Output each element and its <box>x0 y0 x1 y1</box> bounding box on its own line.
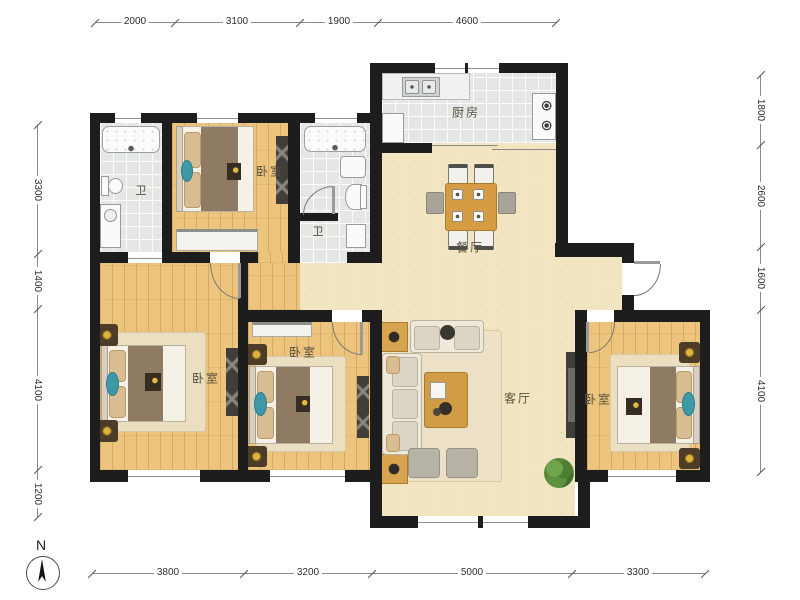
dim-label: 2000 <box>121 16 149 28</box>
bathtub <box>304 126 366 152</box>
dining-chair <box>448 164 468 184</box>
compass-north-label: N <box>36 537 46 553</box>
floor-corridor-wood <box>248 263 300 310</box>
window-mullion <box>465 63 468 73</box>
door-leaf-bedroom-middle <box>360 322 363 354</box>
wall-segment <box>370 310 382 528</box>
wall-segment <box>370 63 382 263</box>
floor-entry-hall <box>575 257 622 310</box>
sliding-door-bath-main <box>128 252 162 263</box>
window <box>608 470 676 482</box>
dim-label: 3800 <box>154 567 182 579</box>
window <box>115 113 141 123</box>
window <box>483 516 528 528</box>
bed-quilt-tray <box>626 398 642 415</box>
wardrobe <box>226 348 238 416</box>
sofa-cushion <box>392 389 418 419</box>
room-label-bedroom-left: 卧室 <box>192 370 220 387</box>
window <box>270 470 345 482</box>
dim-label: 1400 <box>31 267 43 295</box>
place-setting <box>452 189 463 200</box>
window <box>315 113 357 123</box>
dining-chair <box>474 164 494 184</box>
kitchen-sink-basin <box>422 80 436 94</box>
nightstand-lamp <box>679 448 700 469</box>
dimension-line-bottom <box>92 573 705 574</box>
toilet-bowl <box>108 178 123 194</box>
place-setting <box>473 211 484 222</box>
door-opening-bedroom-left <box>210 252 240 263</box>
toilet-tank <box>360 185 367 209</box>
wardrobe <box>357 376 369 438</box>
coffee-table <box>424 372 468 428</box>
door-leaf-bedroom-right <box>586 322 589 352</box>
bed-blanket <box>650 367 676 443</box>
bed-quilt-tray <box>296 396 310 412</box>
wall-segment <box>200 470 270 482</box>
dim-label: 4100 <box>754 377 766 405</box>
bed-quilt-tray <box>145 373 161 391</box>
bathtub <box>102 126 160 153</box>
kitchen-sink-basin <box>405 80 419 94</box>
wall-segment <box>288 252 300 263</box>
dim-label: 1900 <box>325 16 353 28</box>
wall-segment <box>248 310 332 322</box>
washing-machine <box>346 224 366 248</box>
side-table-lamp <box>380 322 408 352</box>
dim-label: 1200 <box>31 480 43 508</box>
door-leaf-bath-second <box>332 186 335 214</box>
dim-label: 1800 <box>754 96 766 124</box>
loveseat-cushion <box>454 326 480 350</box>
side-table-lamp <box>380 454 408 484</box>
bed-quilt-tray <box>227 163 241 180</box>
dim-label: 3300 <box>31 176 43 204</box>
coffee-table-kettle <box>439 402 452 415</box>
wall-segment <box>162 123 172 253</box>
dim-label: 1600 <box>754 264 766 292</box>
sink-basin <box>104 209 117 222</box>
ottoman <box>408 448 440 478</box>
wall-segment <box>578 470 590 528</box>
loveseat-cushion <box>414 326 440 350</box>
bed-runner-accent <box>106 372 119 396</box>
nightstand-lamp <box>246 446 267 467</box>
sink-counter <box>340 156 366 178</box>
dining-chair <box>426 192 444 214</box>
kitchen-sliding-door <box>492 149 556 150</box>
dim-label: 3100 <box>223 16 251 28</box>
room-label-dining: 餐厅 <box>456 239 484 256</box>
nightstand-lamp <box>246 344 267 365</box>
window <box>197 113 238 123</box>
room-label-bedroom-top: 卧室 <box>256 163 284 180</box>
ottoman <box>446 448 478 478</box>
dim-label: 4600 <box>453 16 481 28</box>
wall-segment <box>90 113 100 482</box>
dim-label: 2600 <box>754 182 766 210</box>
room-label-bedroom-right: 卧室 <box>584 391 612 408</box>
fridge <box>382 113 404 143</box>
coffee-table-paper <box>430 382 446 399</box>
room-label-kitchen: 厨房 <box>452 104 480 121</box>
dim-label: 5000 <box>458 567 486 579</box>
wall-segment <box>622 295 634 322</box>
room-label-bath-second: 卫 <box>313 223 326 239</box>
dim-label: 4100 <box>31 376 43 404</box>
dresser <box>252 322 312 337</box>
entry-door-opening <box>622 263 634 295</box>
sofa-pillow <box>386 434 400 452</box>
floor-corridor-beige <box>300 263 382 310</box>
bed-runner-accent <box>682 392 695 416</box>
bed-runner-accent <box>181 160 193 182</box>
dim-label: 3200 <box>294 567 322 579</box>
window <box>418 516 478 528</box>
entry-door-arc <box>634 264 661 296</box>
loveseat-table <box>440 325 455 340</box>
kitchen-sliding-door <box>432 145 498 146</box>
opening-bath-second <box>300 252 347 263</box>
window <box>128 470 200 482</box>
stove <box>532 93 556 140</box>
place-setting <box>452 211 463 222</box>
sofa-pillow <box>386 356 400 374</box>
dining-chair <box>498 192 516 214</box>
dim-label: 3300 <box>624 567 652 579</box>
floor-plan-canvas: 厨房 餐厅 客厅 卧室 卧室 卧室 卧室 卫 卫 2000 3100 1900 … <box>0 0 800 600</box>
wall-segment <box>162 252 210 263</box>
dresser <box>176 229 258 251</box>
place-setting <box>473 189 484 200</box>
wall-segment <box>288 123 300 253</box>
bed-runner-accent <box>254 392 267 416</box>
wall-segment <box>700 310 710 482</box>
wall-segment <box>556 63 568 247</box>
nightstand-lamp <box>679 342 700 363</box>
room-label-bath-main: 卫 <box>136 182 149 198</box>
coffee-table-cup <box>433 408 441 416</box>
room-label-living: 客厅 <box>504 390 532 407</box>
opening-bedroom-top <box>258 252 288 263</box>
room-label-bedroom-middle: 卧室 <box>289 344 317 361</box>
door-leaf-bedroom-left <box>238 263 241 298</box>
entry-door-leaf <box>634 261 660 264</box>
plant <box>544 458 574 488</box>
